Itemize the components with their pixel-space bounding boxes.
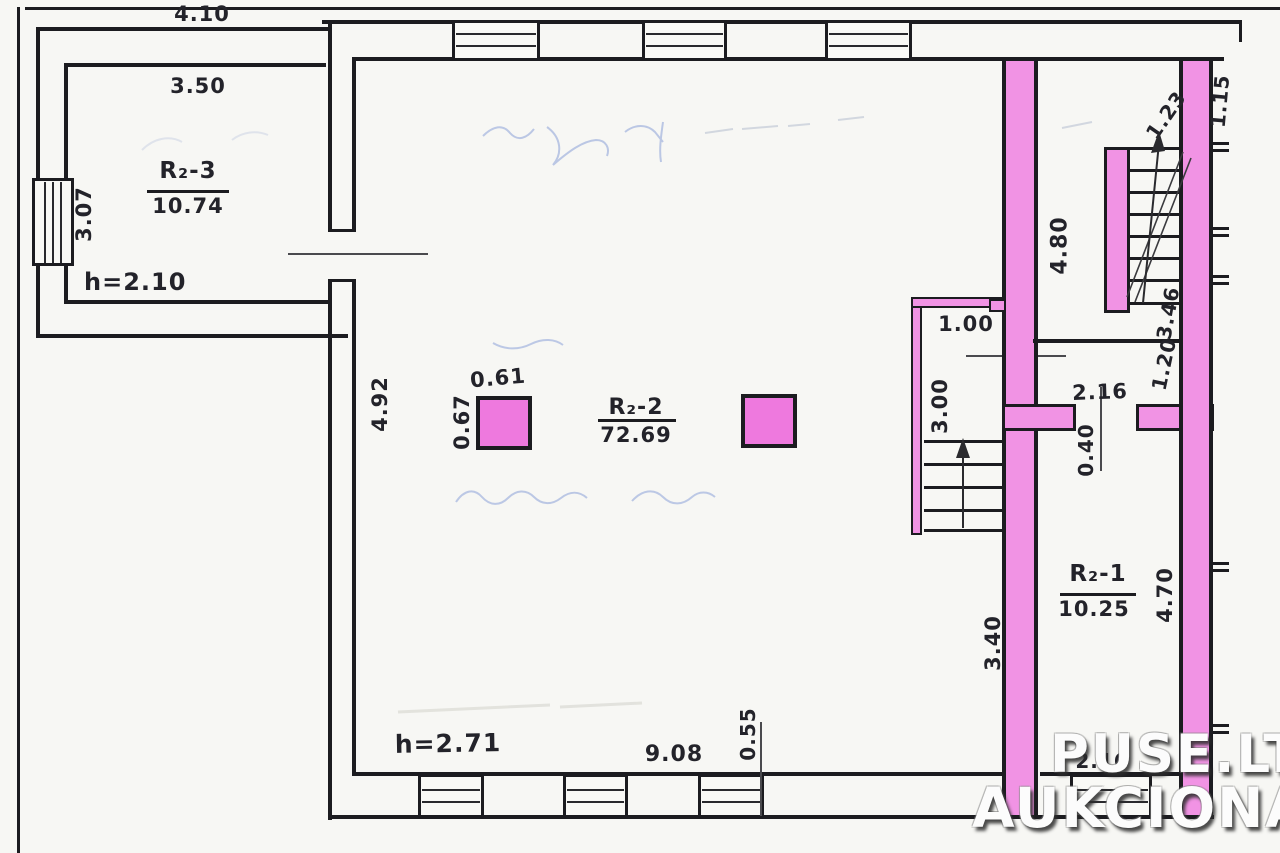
dim-label-alcove-width: 1.00 bbox=[936, 312, 996, 336]
fraction-bar bbox=[147, 190, 229, 193]
door-leader-line bbox=[288, 253, 428, 255]
stair-tread bbox=[924, 463, 1004, 466]
dim-label-main-left: 4.92 bbox=[368, 374, 392, 434]
window-glazing-line bbox=[567, 789, 624, 791]
wall-tick-mark bbox=[1209, 142, 1229, 145]
window-glazing-line bbox=[646, 45, 723, 47]
corridor-wall-highlight bbox=[1006, 61, 1034, 815]
window-glazing-line bbox=[456, 33, 536, 35]
window-glazing-line bbox=[646, 33, 723, 35]
dim-label-column-depth: 0.67 bbox=[450, 392, 474, 452]
stair-tread bbox=[924, 440, 1004, 443]
top-window bbox=[642, 20, 727, 61]
window-glazing-line bbox=[702, 789, 760, 791]
dim-label-alcove-depth: 3.00 bbox=[928, 376, 952, 436]
room-label-r2-height: h=2.71 bbox=[392, 728, 504, 759]
top-window bbox=[452, 20, 540, 61]
window-glazing-line bbox=[44, 182, 46, 263]
window-glazing-line bbox=[702, 801, 760, 803]
room-label-r3-area: 10.74 bbox=[146, 194, 230, 218]
dim-label-main-bottom: 9.08 bbox=[638, 742, 710, 767]
stair-tread bbox=[1130, 213, 1183, 216]
room-label-r1-area: 10.25 bbox=[1052, 597, 1136, 621]
stair-tread bbox=[924, 529, 1004, 532]
door-jamb bbox=[328, 229, 356, 232]
top-right-wall-stub bbox=[1239, 20, 1242, 42]
wall-stub bbox=[989, 299, 1006, 312]
window-glazing-line bbox=[829, 33, 908, 35]
column-pier bbox=[476, 396, 532, 450]
dim-label-annex-top: 4.10 bbox=[162, 2, 242, 26]
stair-tread bbox=[1130, 257, 1183, 260]
room-label-r3-name: R₂-3 bbox=[146, 158, 230, 184]
dimension-line-0-55 bbox=[760, 722, 762, 816]
dim-label-annex-inner-width: 3.50 bbox=[158, 74, 238, 98]
pencil-gray-streaks bbox=[398, 703, 642, 712]
annex-bottom-wall-outer bbox=[36, 334, 348, 338]
stair-stringer-wall bbox=[1104, 147, 1130, 313]
dim-label-door: 0.40 bbox=[1074, 420, 1098, 480]
dim-label-annex-left: 3.07 bbox=[72, 184, 96, 244]
dim-label-column-width: 0.61 bbox=[467, 363, 529, 392]
window-glazing-line bbox=[456, 45, 536, 47]
bottom-window bbox=[698, 774, 764, 818]
door-jamb bbox=[328, 279, 356, 282]
room-label-r1-name: R₂-1 bbox=[1056, 561, 1140, 587]
annex-bottom-wall-inner bbox=[64, 300, 328, 304]
wall-tick-mark bbox=[1209, 149, 1229, 152]
stair-tread bbox=[1130, 147, 1183, 150]
dim-label-small-room: 2.16 bbox=[1068, 379, 1133, 405]
stair-tread bbox=[924, 509, 1004, 512]
top-window bbox=[825, 20, 912, 61]
wall-tick-mark bbox=[1209, 569, 1229, 572]
main-left-wall-inner-lower bbox=[352, 280, 356, 775]
room-label-r2-name: R₂-2 bbox=[596, 395, 676, 420]
annex-left-wall-inner-upper bbox=[64, 63, 68, 182]
corridor-wall-right-line bbox=[1034, 57, 1038, 818]
stair-tread bbox=[1130, 279, 1183, 282]
column-pier bbox=[741, 394, 797, 448]
bottom-window bbox=[563, 774, 628, 818]
annex-top-wall-inner bbox=[66, 63, 326, 67]
room-label-r3-height: h=2.10 bbox=[84, 268, 184, 296]
alcove-left-wall bbox=[911, 297, 922, 535]
pencil-faint-marks bbox=[142, 132, 268, 150]
scan-frame-left bbox=[17, 7, 20, 853]
annex-left-wall-inner-lower bbox=[64, 260, 68, 304]
stair-tread bbox=[924, 486, 1004, 489]
stair-tread bbox=[1130, 169, 1183, 172]
wall-tick-mark bbox=[1209, 234, 1229, 237]
room-label-r2-area: 72.69 bbox=[594, 423, 678, 447]
wall-tick-mark bbox=[1209, 227, 1229, 230]
wall-tick-mark bbox=[1209, 562, 1229, 565]
window-glazing-line bbox=[422, 789, 480, 791]
wall-tick-mark bbox=[1209, 275, 1229, 278]
fraction-bar bbox=[1060, 593, 1136, 596]
window-glazing-line bbox=[829, 45, 908, 47]
dim-label-right-wall-top: 1.15 bbox=[1205, 70, 1234, 132]
main-left-wall-inner-upper bbox=[352, 57, 356, 232]
dim-label-corridor: 3.40 bbox=[981, 613, 1005, 673]
wall-tick-mark bbox=[1209, 282, 1229, 285]
main-left-wall-outer-lower bbox=[328, 280, 332, 820]
dim-label-0-55: 0.55 bbox=[736, 704, 760, 764]
window-glazing-line bbox=[422, 801, 480, 803]
right-wall-outer-line bbox=[1209, 57, 1213, 818]
floor-plan-scan: 4.10 3.50 R₂-3 10.74 3.07 h=2.10 4.92 0.… bbox=[0, 0, 1280, 853]
dim-label-r1-depth: 4.70 bbox=[1153, 565, 1177, 625]
window-glazing-line bbox=[567, 801, 624, 803]
stair-tread bbox=[1130, 235, 1183, 238]
dim-label-stair-hall: 4.80 bbox=[1048, 214, 1073, 278]
bottom-window bbox=[418, 774, 484, 818]
main-left-wall-outer-upper bbox=[328, 20, 332, 232]
window-glazing-line bbox=[52, 182, 54, 263]
cross-wall-left-segment bbox=[1002, 404, 1076, 431]
watermark-line2: AUKCIONAI bbox=[972, 776, 1280, 840]
window-glazing-line bbox=[60, 182, 62, 263]
annex-top-wall-outer bbox=[36, 27, 328, 31]
stair-tread bbox=[1130, 191, 1183, 194]
right-wall-highlight bbox=[1183, 61, 1209, 815]
